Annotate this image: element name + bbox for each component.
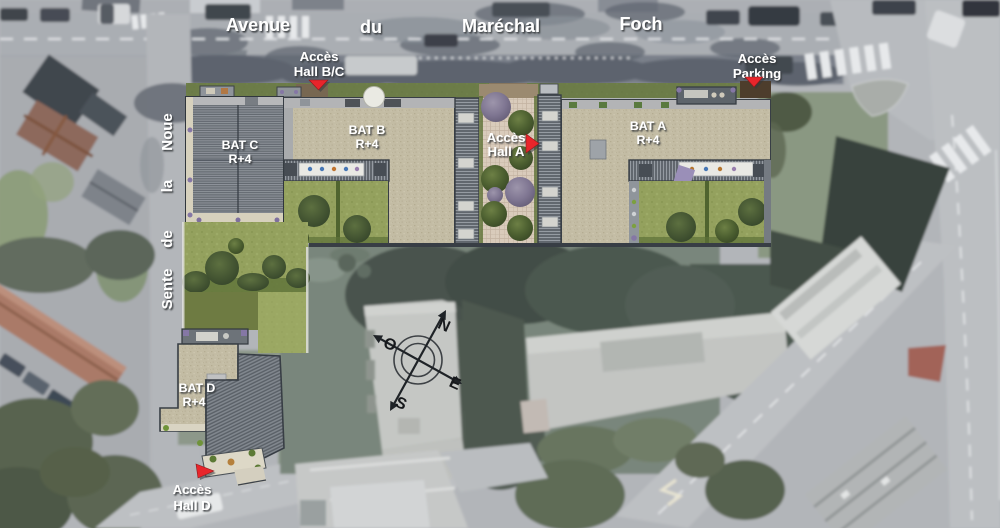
svg-text:R+4: R+4: [183, 395, 206, 409]
svg-text:BAT D: BAT D: [179, 381, 216, 395]
svg-text:Accès: Accès: [300, 49, 339, 64]
svg-text:Sente: Sente: [159, 269, 176, 310]
svg-text:BAT C: BAT C: [222, 138, 259, 152]
svg-text:de: de: [159, 230, 176, 248]
svg-text:Hall D: Hall D: [173, 498, 210, 513]
svg-text:BAT B: BAT B: [349, 123, 386, 137]
svg-text:R+4: R+4: [637, 133, 660, 147]
svg-text:Hall B/C: Hall B/C: [294, 64, 345, 79]
svg-text:Hall A: Hall A: [488, 144, 525, 159]
svg-text:Avenue: Avenue: [226, 15, 290, 35]
svg-text:R+4: R+4: [356, 137, 379, 151]
svg-text:Accès: Accès: [738, 51, 777, 66]
svg-text:Accès: Accès: [173, 482, 212, 497]
svg-text:Noue: Noue: [159, 113, 176, 151]
svg-text:la: la: [159, 179, 176, 192]
svg-text:du: du: [360, 17, 382, 37]
svg-text:BAT A: BAT A: [630, 119, 666, 133]
svg-text:Foch: Foch: [620, 14, 663, 34]
svg-text:Accès: Accès: [487, 130, 526, 145]
svg-text:R+4: R+4: [229, 152, 252, 166]
svg-text:Maréchal: Maréchal: [462, 16, 540, 36]
